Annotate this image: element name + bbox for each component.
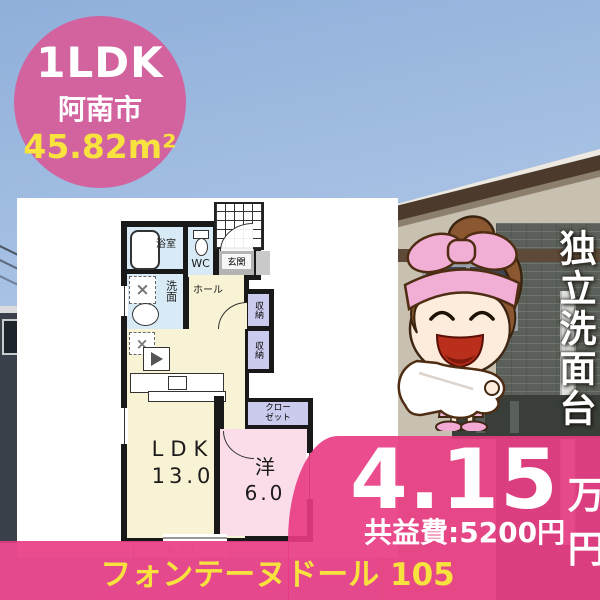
rent-unit: 万円 <box>568 465 600 573</box>
toilet-bowl-icon <box>195 238 208 256</box>
entrance-step <box>256 251 270 275</box>
left-building-roof-edge <box>0 306 18 313</box>
property-badge: 1LDK 阿南市 45.82m² <box>14 16 186 188</box>
entrance-label-chip: 玄関 <box>222 254 251 269</box>
city-name: 阿南市 <box>58 88 142 128</box>
tv-stand-icon <box>143 347 170 371</box>
hand <box>485 381 499 395</box>
left-building <box>0 313 18 543</box>
western-label: 洋 <box>235 454 295 480</box>
hall-label: ホール <box>193 285 223 297</box>
washroom-label: 洗面 <box>164 280 177 302</box>
bow-knot <box>448 240 475 263</box>
closet-label-2: ゼット <box>265 414 291 424</box>
western-label-block: 洋 6.0 <box>235 454 295 506</box>
window-mark <box>121 286 128 316</box>
layout-type: 1LDK <box>36 41 163 85</box>
common-fee: 共益費:5200円 <box>364 511 565 551</box>
storage-upper: 収納 <box>248 294 269 326</box>
feature-caption: 独立洗面台 <box>549 229 593 429</box>
storage-lower-label: 収納 <box>252 341 265 359</box>
left-slipper <box>436 422 462 432</box>
floor-area: 45.82m² <box>23 130 176 163</box>
storage-lower: 収納 <box>248 331 269 369</box>
property-name: フォンテーヌドール 105 <box>0 549 555 594</box>
right-slipper <box>461 422 487 432</box>
western-size: 6.0 <box>235 480 295 506</box>
washing-machine-icon: × <box>129 276 156 304</box>
rent-value: 4.15 <box>350 438 559 521</box>
window-mark <box>121 408 128 444</box>
listing-flyer: 1LDK 阿南市 45.82m² 浴室 WC 玄関 ホール × 洗面 収納 <box>0 0 600 600</box>
storage-upper-label: 収納 <box>252 301 265 319</box>
entrance-label: 玄関 <box>227 255 245 268</box>
kitchen-sink-icon <box>168 376 187 390</box>
bath-label: 浴室 <box>156 239 176 251</box>
room-closet: クロー ゼット <box>248 402 308 425</box>
washbasin-icon <box>132 303 159 326</box>
triangle-icon <box>151 352 163 366</box>
mascot-character <box>391 211 533 431</box>
wc-label: WC <box>188 258 213 271</box>
